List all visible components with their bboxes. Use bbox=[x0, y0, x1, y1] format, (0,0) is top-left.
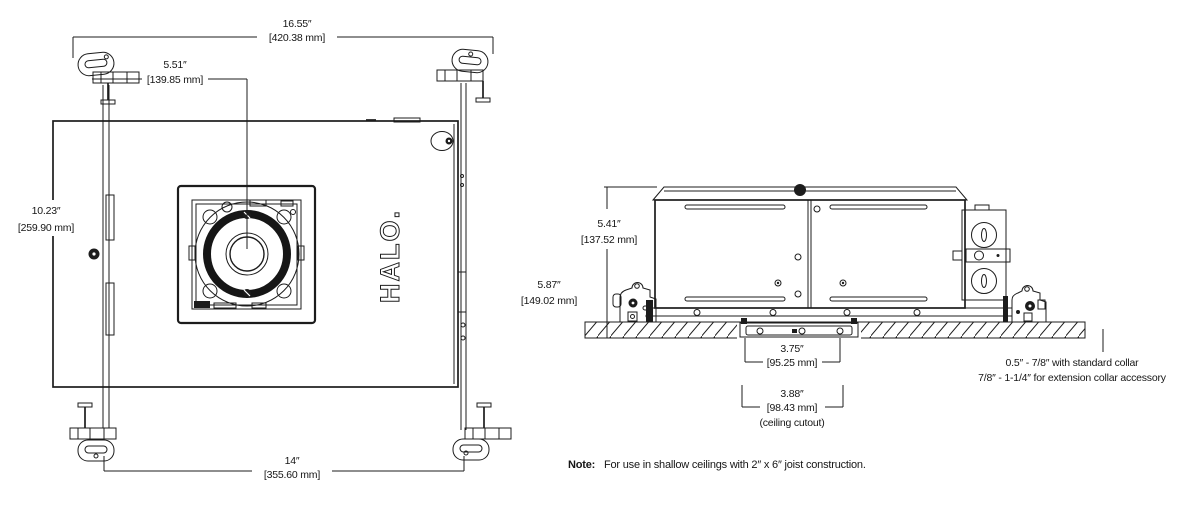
dim-collar-width: 3.75″ [95.25 mm] bbox=[745, 338, 840, 369]
mounting-flange bbox=[651, 308, 1012, 322]
dim-aperture-center-mm: [139.85 mm] bbox=[147, 74, 203, 86]
footnote: Note: For use in shallow ceilings with 2… bbox=[568, 459, 866, 471]
dimension-drawing-sheet: 16.55″ [420.38 mm] 5.51″ [139.85 mm] 10.… bbox=[0, 0, 1200, 522]
housing-lid bbox=[653, 187, 967, 200]
side-view: 5.41″ [137.52 mm] 5.87″ [149.02 mm] 3.75… bbox=[521, 184, 1167, 429]
cable-clamp bbox=[431, 132, 453, 151]
footnote-text: For use in shallow ceilings with 2″ x 6″… bbox=[604, 459, 866, 471]
halo-housing-dimension-drawing: 16.55″ [420.38 mm] 5.51″ [139.85 mm] 10.… bbox=[0, 0, 1200, 522]
dim-bar-length-inches: 14″ bbox=[285, 455, 300, 467]
housing-side bbox=[646, 184, 1012, 322]
dim-aperture-center-inches: 5.51″ bbox=[163, 59, 187, 71]
dim-overall-width-inches: 16.55″ bbox=[283, 18, 312, 30]
dim-overall-width-mm: [420.38 mm] bbox=[269, 32, 325, 44]
hanger-foot-top-right bbox=[437, 48, 490, 102]
dim-bar-length: 14″ [355.60 mm] bbox=[104, 455, 464, 481]
junction-box bbox=[953, 205, 1010, 300]
knockout-bottom bbox=[972, 269, 997, 294]
hanger-foot-top-left bbox=[77, 51, 139, 104]
adjustment-knob bbox=[794, 184, 806, 196]
dim-overall-width: 16.55″ [420.38 mm] bbox=[73, 18, 493, 58]
collar-range-line2: 7/8″ - 1-1/4″ for extension collar acces… bbox=[978, 372, 1167, 384]
dim-bar-length-mm: [355.60 mm] bbox=[264, 469, 320, 481]
dim-collar-width-inches: 3.75″ bbox=[780, 343, 804, 355]
hanger-rail-left bbox=[89, 85, 115, 428]
dim-overall-height-inches: 5.87″ bbox=[537, 279, 561, 291]
dim-ceiling-cutout-mm: [98.43 mm] bbox=[767, 402, 818, 414]
dim-collar-width-mm: [95.25 mm] bbox=[767, 357, 818, 369]
dim-overall-height: 5.87″ [149.02 mm] bbox=[521, 279, 577, 307]
footnote-label: Note: bbox=[568, 459, 595, 471]
dim-housing-height-inches: 5.41″ bbox=[597, 218, 621, 230]
collar-range-line1: 0.5″ - 7/8″ with standard collar bbox=[1006, 357, 1140, 369]
hanger-bracket-right bbox=[1012, 286, 1046, 323]
dim-housing-height-mm: [137.52 mm] bbox=[581, 234, 637, 246]
dim-ceiling-cutout-caption: (ceiling cutout) bbox=[759, 417, 824, 429]
brand-logo: HALO. bbox=[375, 209, 405, 303]
hanger-foot-bottom-right bbox=[453, 403, 511, 460]
hanger-rail-right bbox=[458, 83, 466, 430]
plan-view: 16.55″ [420.38 mm] 5.51″ [139.85 mm] 10.… bbox=[12, 18, 511, 481]
dim-housing-depth: 10.23″ [259.90 mm] bbox=[12, 200, 82, 236]
dim-ceiling-cutout: 3.88″ [98.43 mm] (ceiling cutout) bbox=[742, 385, 843, 429]
dim-ceiling-cutout-inches: 3.88″ bbox=[780, 388, 804, 400]
dim-overall-height-mm: [149.02 mm] bbox=[521, 295, 577, 307]
dim-housing-depth-inches: 10.23″ bbox=[32, 205, 61, 217]
knockout-top bbox=[972, 223, 997, 248]
dim-housing-depth-mm: [259.90 mm] bbox=[18, 222, 74, 234]
